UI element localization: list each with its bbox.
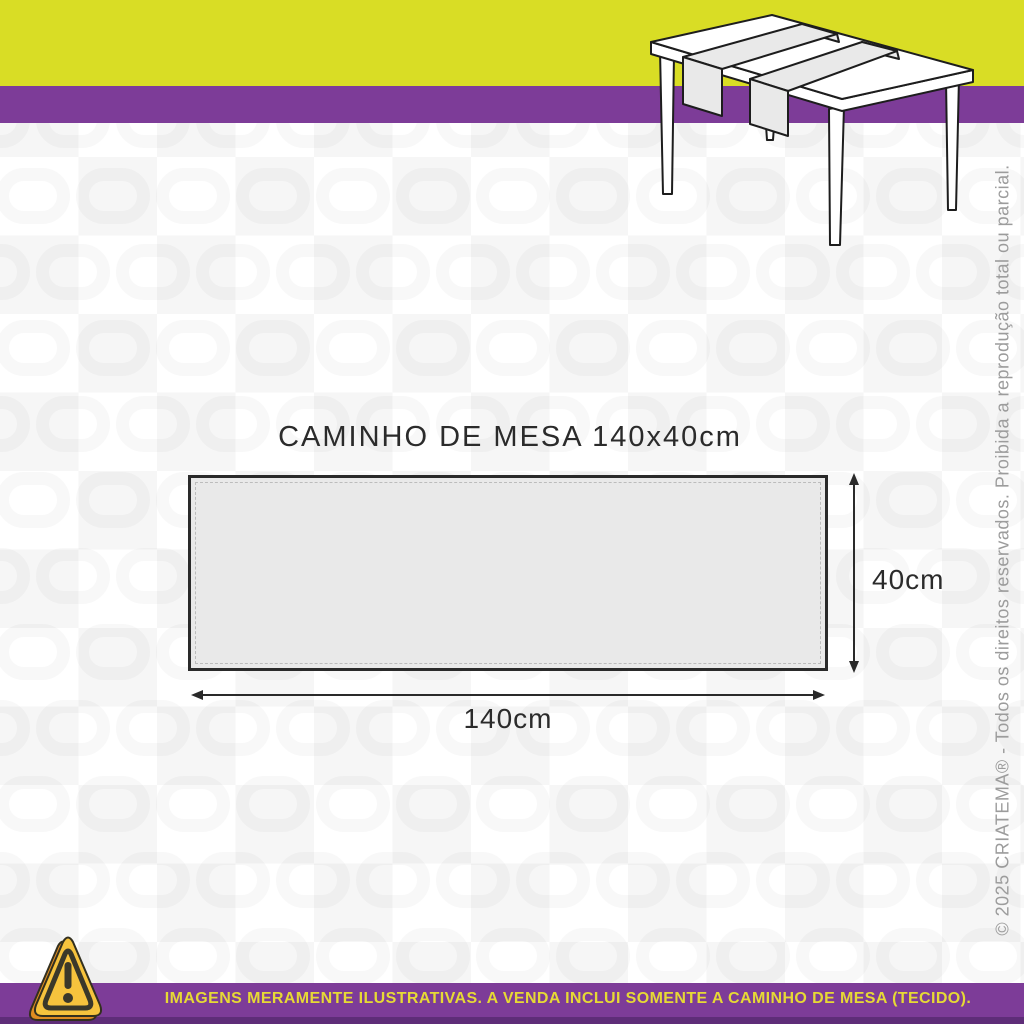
diagram-title: CAMINHO DE MESA 140x40cm (190, 421, 830, 454)
exclamation-mark (65, 962, 72, 989)
width-label: 140cm (188, 703, 828, 735)
warning-triangle-icon (24, 930, 112, 1022)
table-leg-left (660, 50, 674, 194)
exclamation-dot (63, 993, 73, 1003)
width-arrow (188, 686, 828, 704)
table-leg-right (946, 77, 959, 210)
copyright-text: © 2025 CRIATEMA® - Todos os direitos res… (993, 164, 1014, 935)
table-leg-front (829, 106, 844, 245)
runner-rectangle (188, 475, 828, 671)
infographic-page: MEDIDAS CAMINHO DE MESA CAMINHO DE MESA … (0, 0, 1024, 1024)
height-arrow (845, 470, 863, 676)
table-illustration (630, 8, 990, 250)
disclaimer-text: IMAGENS MERAMENTE ILUSTRATIVAS. A VENDA … (118, 983, 1018, 1015)
height-label: 40cm (872, 564, 944, 596)
